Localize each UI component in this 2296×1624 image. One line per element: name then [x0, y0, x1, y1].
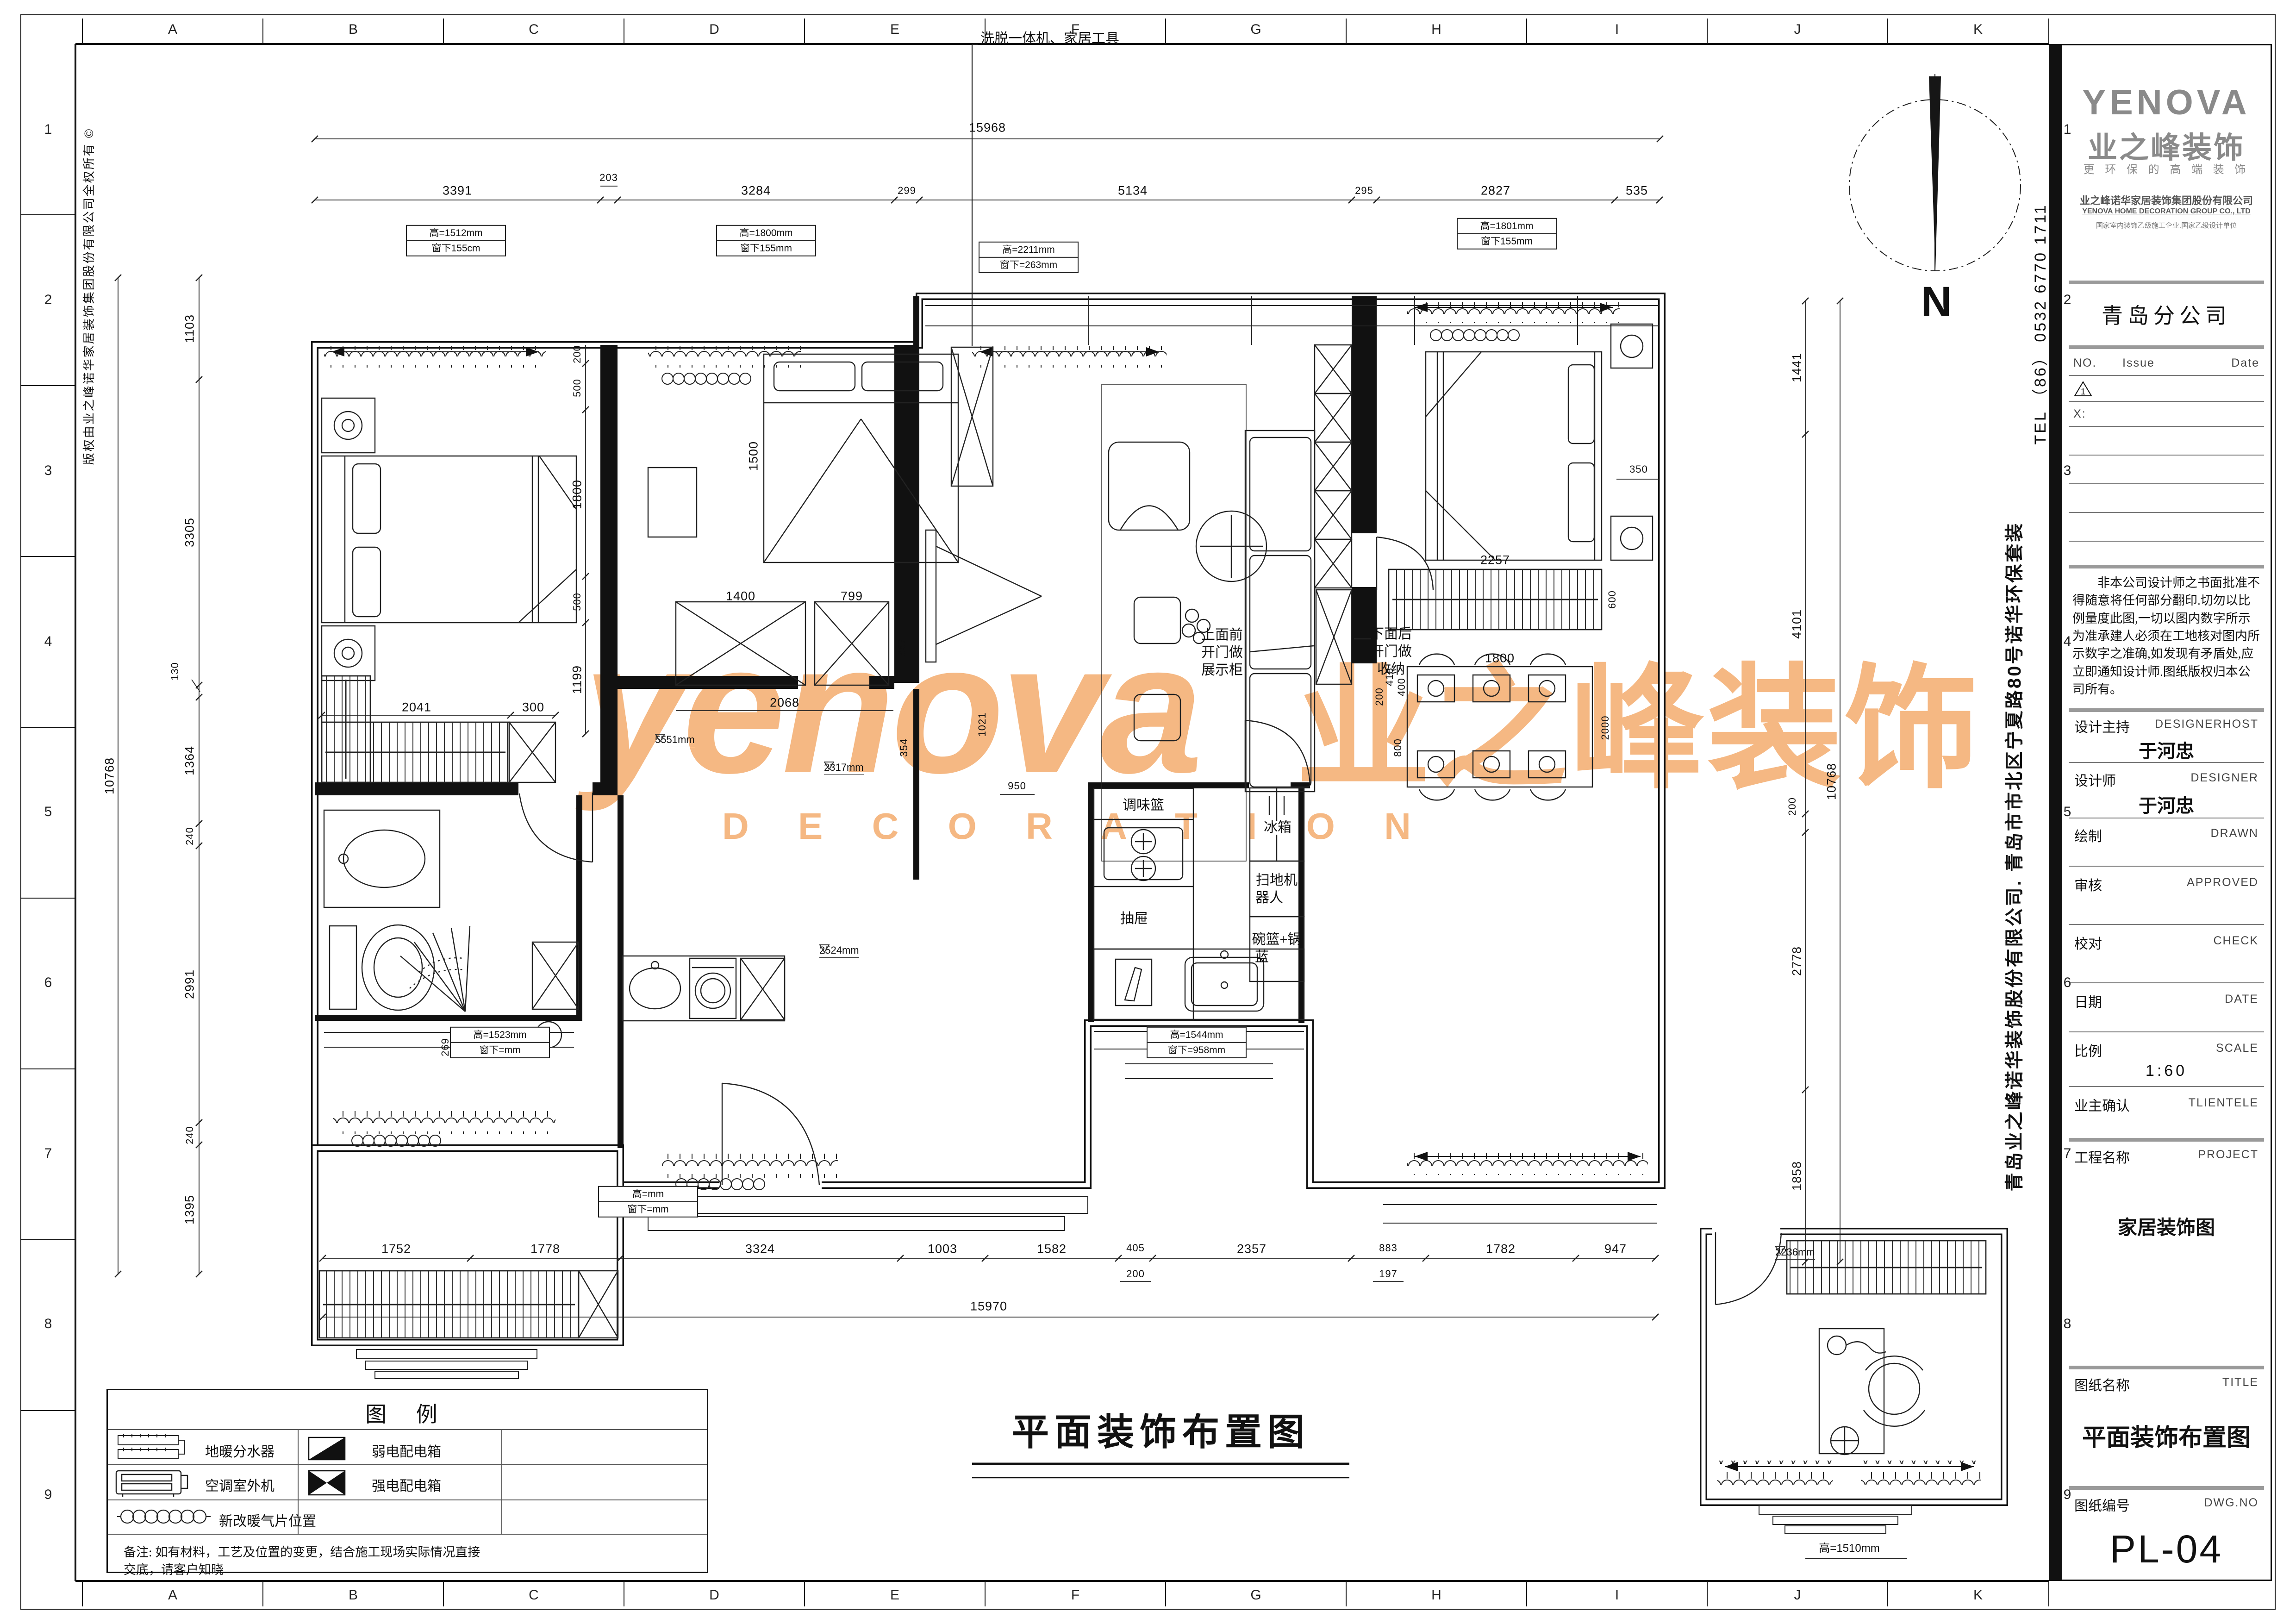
- dim: 400: [1397, 678, 1407, 696]
- row-value: 于河忠: [2139, 736, 2194, 763]
- dim: 350: [1629, 464, 1648, 475]
- grid-letter: D: [709, 1588, 719, 1602]
- cad-sheet: yenova D E C O R A T I O N 业之峰装饰: [0, 0, 2296, 1624]
- kitchen-label-bowl: 碗篮+锅: [1252, 933, 1302, 947]
- dim: 535: [1626, 185, 1648, 197]
- dim: 10768: [1826, 763, 1838, 800]
- grid-number: 3: [2064, 464, 2071, 478]
- dim: 2000: [1600, 716, 1610, 740]
- grid-letter: A: [168, 23, 177, 37]
- legend-strong-box-icon: [307, 1469, 349, 1497]
- dim: 799: [841, 590, 863, 603]
- dim: 295: [1355, 186, 1373, 196]
- dim: 1400: [726, 590, 755, 603]
- dim: 947: [1604, 1243, 1627, 1255]
- dim: 367: [897, 638, 907, 656]
- dim: 600: [1607, 590, 1617, 609]
- row-en: DATE: [2225, 993, 2259, 1006]
- grid-letter: K: [1973, 23, 1983, 37]
- dim: 240: [185, 827, 195, 845]
- row-en: DESIGNER: [2190, 771, 2259, 785]
- grid-letter: B: [349, 1588, 358, 1602]
- dim: 10768: [104, 757, 116, 794]
- dim: 200: [1787, 797, 1797, 816]
- grid-letter: I: [1615, 23, 1619, 37]
- dim: 1778: [530, 1243, 560, 1255]
- grid-number: 7: [2064, 1147, 2071, 1161]
- grid-letter: H: [1431, 1588, 1441, 1602]
- dim: 2778: [1791, 946, 1803, 976]
- copyright-vertical-text: 版权由业之峰诺华家居装饰集团股份有限公司全权所有 ©: [83, 128, 95, 465]
- row-label: 图纸编号: [2074, 1494, 2130, 1515]
- legend-item-label: 地暖分水器: [205, 1440, 275, 1461]
- north-arrow-icon: [1849, 74, 2021, 271]
- cabinet-note-upper: 展示柜: [1201, 663, 1243, 677]
- kitchen-label-fridge: 冰箱: [1264, 821, 1291, 835]
- dim: 2068: [770, 697, 799, 709]
- window-tag: 高=1544mm窗下=958mm: [1147, 1027, 1247, 1058]
- revision-x-label: X:: [2073, 407, 2086, 421]
- grid-letter: G: [1250, 23, 1261, 37]
- legend-title: 图 例: [365, 1398, 449, 1428]
- level-marker: 2524mm: [819, 944, 859, 958]
- row-en: PROJECT: [2198, 1148, 2259, 1162]
- dim: 1800: [1485, 652, 1515, 665]
- issue-col-no: NO.: [2073, 356, 2096, 370]
- grid-number: 9: [44, 1488, 52, 1502]
- window-tag: 高=mm窗下=mm: [598, 1186, 698, 1218]
- row-en: DWG.NO: [2204, 1496, 2259, 1510]
- row-label: 业主确认: [2074, 1094, 2130, 1115]
- dim: 1752: [381, 1243, 411, 1255]
- dim: 3324: [745, 1243, 775, 1255]
- dim: 418: [1385, 668, 1395, 686]
- dim: 1500: [748, 441, 760, 471]
- row-value: 于河忠: [2139, 791, 2194, 818]
- dim: 1858: [1791, 1161, 1803, 1191]
- north-label: N: [1921, 281, 1952, 323]
- grid-number: 7: [44, 1147, 52, 1161]
- grid-number: 1: [44, 123, 52, 137]
- row-label: 绘制: [2074, 825, 2102, 845]
- grid-number: 5: [2064, 805, 2071, 819]
- cabinet-note-lower: 下面后: [1370, 627, 1412, 641]
- legend-note: 备注: 如有材料，工艺及位置的变更，结合施工现场实际情况直接: [124, 1542, 480, 1560]
- dim: 950: [1008, 781, 1026, 791]
- legend-manifold-icon: [116, 1433, 195, 1462]
- dim: 1782: [1486, 1243, 1516, 1255]
- dim: 15968: [969, 122, 1006, 134]
- row-en: TLIENTELE: [2189, 1096, 2259, 1110]
- dim: 2257: [1480, 554, 1510, 567]
- dim: 500: [572, 379, 582, 397]
- dim: 1021: [977, 712, 987, 737]
- tel-vertical-text: TEL （86） 0532 6770 1711: [2033, 203, 2048, 444]
- dim: 1800: [571, 480, 584, 509]
- kitchen-label-robot: 器人: [1255, 891, 1283, 905]
- company-name-cn: 业之峰诺华家居装饰集团股份有限公司: [2080, 193, 2253, 207]
- revision-number: 1: [2081, 387, 2085, 397]
- dim: 4101: [1791, 609, 1803, 639]
- row-label: 比例: [2074, 1040, 2102, 1060]
- dim: 200: [1126, 1269, 1145, 1279]
- grid-number: 8: [2064, 1317, 2071, 1331]
- level-marker: 5551mm: [655, 734, 695, 747]
- grid-number: 6: [44, 976, 52, 990]
- grid-number: 9: [2064, 1488, 2071, 1502]
- dim: 1582: [1037, 1243, 1067, 1255]
- level-marker-icon: [819, 944, 830, 953]
- dim: 3305: [184, 518, 196, 547]
- cabinet-note-upper: 上面前: [1201, 628, 1243, 642]
- grid-letter: E: [890, 1588, 899, 1602]
- row-en: DRAWN: [2210, 827, 2259, 840]
- laundry-callout: 洗脱一体机、家居工具: [980, 32, 1119, 46]
- dim: 15970: [970, 1300, 1007, 1313]
- dim: 130: [170, 662, 180, 681]
- kitchen-label-robot: 扫地机: [1256, 874, 1298, 887]
- dim: 300: [522, 701, 544, 714]
- window-tag: 高=1523mm窗下=mm: [450, 1027, 550, 1058]
- row-label: 设计师: [2074, 769, 2116, 790]
- window-tag: 高=1800mm窗下155mm: [716, 225, 816, 256]
- dim: 883: [1379, 1243, 1398, 1253]
- level-marker: 2236mm: [1775, 1246, 1815, 1260]
- row-en: DESIGNERHOST: [2155, 718, 2259, 731]
- row-label: 校对: [2074, 932, 2102, 953]
- level-marker-icon: [1775, 1246, 1785, 1255]
- dim: 197: [1379, 1269, 1398, 1279]
- level-marker: 2317mm: [824, 762, 864, 775]
- grid-letter: B: [349, 23, 358, 37]
- row-value: 1:60: [2146, 1062, 2187, 1080]
- grid-letter: C: [529, 1588, 539, 1602]
- legend-item-label: 空调室外机: [205, 1474, 275, 1495]
- logo-wordmark: YENOVA: [2082, 82, 2250, 123]
- kitchen-label-spice: 调味篮: [1123, 799, 1164, 812]
- grid-letter: J: [1794, 23, 1801, 37]
- cabinet-note-upper: 开门做: [1201, 646, 1243, 660]
- dim: 5134: [1118, 185, 1148, 197]
- dim: 405: [1126, 1243, 1145, 1253]
- row-label: 设计主持: [2074, 716, 2130, 736]
- sheet-number: PL-04: [2110, 1527, 2223, 1572]
- logo-slogan: 更 环 保 的 高 端 装 饰: [2084, 160, 2250, 176]
- row-label: 审核: [2074, 874, 2102, 894]
- grid-letter: A: [168, 1588, 177, 1602]
- row-label: 日期: [2074, 991, 2102, 1011]
- row-en: APPROVED: [2187, 876, 2259, 889]
- dim: 1199: [571, 665, 584, 694]
- kitchen-label-bowl: 蓝: [1255, 950, 1269, 964]
- grid-letter: H: [1431, 23, 1441, 37]
- title-block: YENOVA 业之峰装饰 更 环 保 的 高 端 装 饰 业之峰诺华家居装饰集团…: [2061, 44, 2272, 1581]
- grid-letter: I: [1615, 1588, 1619, 1602]
- company-vertical-text: 青岛业之峰诺华装饰股份有限公司. 青岛市市北区宁夏路80号诺华环保套装: [2005, 522, 2024, 1192]
- grid-letter: D: [709, 23, 719, 37]
- row-value: 平面装饰布置图: [2082, 1418, 2251, 1453]
- grid-letter: G: [1250, 1588, 1261, 1602]
- dim: 1395: [184, 1195, 196, 1224]
- grid-number: 2: [2064, 293, 2071, 307]
- level-marker-icon: [824, 762, 834, 770]
- dim: 1003: [928, 1243, 957, 1255]
- dim: 2357: [1237, 1243, 1267, 1255]
- grid-number: 2: [44, 293, 52, 307]
- legend-note: 交底，请客户知晓: [124, 1560, 224, 1578]
- legend-weak-box-icon: [307, 1436, 349, 1462]
- issue-col-issue: Issue: [2122, 356, 2155, 370]
- grid-number: 3: [44, 464, 52, 478]
- legend-ac-unit-icon: [114, 1468, 198, 1498]
- dim: 1441: [1791, 353, 1803, 382]
- dim: 3284: [741, 185, 771, 197]
- grid-number: 1: [2064, 123, 2071, 137]
- drawing-title: 平面装饰布置图: [1012, 1414, 1310, 1451]
- company-qualification: 国家室内装饰乙级施工企业.国家乙级设计单位: [2096, 220, 2237, 230]
- dim: 2991: [184, 969, 196, 999]
- legend-item-label: 弱电配电箱: [372, 1440, 441, 1461]
- grid-number: 6: [2064, 976, 2071, 990]
- row-label: 图纸名称: [2074, 1374, 2130, 1394]
- dim: 1364: [184, 746, 196, 775]
- legend-item-label: 新改暖气片位置: [219, 1510, 316, 1530]
- window-tag: 高=1801mm窗下155mm: [1457, 218, 1557, 250]
- study-window-tag: 高=1510mm: [1819, 1543, 1879, 1554]
- grid-number: 8: [44, 1317, 52, 1331]
- dim: 269: [440, 1038, 450, 1056]
- dim: 299: [898, 186, 916, 196]
- dim: 200: [1374, 687, 1385, 706]
- window-tag: 高=2211mm窗下=263mm: [979, 242, 1079, 273]
- row-en: SCALE: [2216, 1042, 2259, 1055]
- dim: 200: [572, 345, 582, 363]
- disclaimer-text: 非本公司设计师之书面批准不得随意将任何部分翻印.切勿以比例量度此图,一切以图内数…: [2072, 574, 2260, 698]
- legend-radiator-icon: [116, 1505, 213, 1528]
- dim: 240: [185, 1126, 195, 1144]
- grid-letter: E: [890, 23, 899, 37]
- dim: 3391: [443, 185, 472, 197]
- grid-letter: K: [1973, 1588, 1983, 1602]
- legend: 图 例 地暖分水器 弱电配电箱: [106, 1389, 708, 1573]
- row-label: 工程名称: [2074, 1146, 2130, 1167]
- dim: 203: [599, 173, 618, 183]
- dim: 800: [1393, 738, 1403, 757]
- cabinet-note-lower: 开门做: [1370, 645, 1412, 659]
- branch-name: 青岛分公司: [2102, 299, 2231, 330]
- window-tag: 高=1512mm窗下155cm: [406, 225, 506, 256]
- row-value: 家居装饰图: [2118, 1212, 2215, 1240]
- dim: 1103: [184, 314, 196, 343]
- legend-item-label: 强电配电箱: [372, 1474, 441, 1495]
- dim: 354: [899, 738, 909, 757]
- issue-col-date: Date: [2231, 356, 2259, 370]
- company-name-en: YENOVA HOME DECORATION GROUP CO., LTD: [2082, 207, 2251, 216]
- grid-number: 5: [44, 805, 52, 819]
- dim: 2041: [402, 701, 431, 714]
- row-en: TITLE: [2222, 1376, 2259, 1389]
- kitchen-label-drawer: 抽屉: [1120, 912, 1148, 926]
- grid-letter: C: [529, 23, 539, 37]
- grid-number: 4: [2064, 635, 2071, 649]
- grid-letter: F: [1071, 1588, 1079, 1602]
- row-en: CHECK: [2213, 934, 2259, 948]
- dim: 500: [572, 593, 582, 611]
- grid-number: 4: [44, 635, 52, 649]
- grid-letter: J: [1794, 1588, 1801, 1602]
- dim: 2827: [1481, 185, 1510, 197]
- level-marker-icon: [655, 734, 665, 742]
